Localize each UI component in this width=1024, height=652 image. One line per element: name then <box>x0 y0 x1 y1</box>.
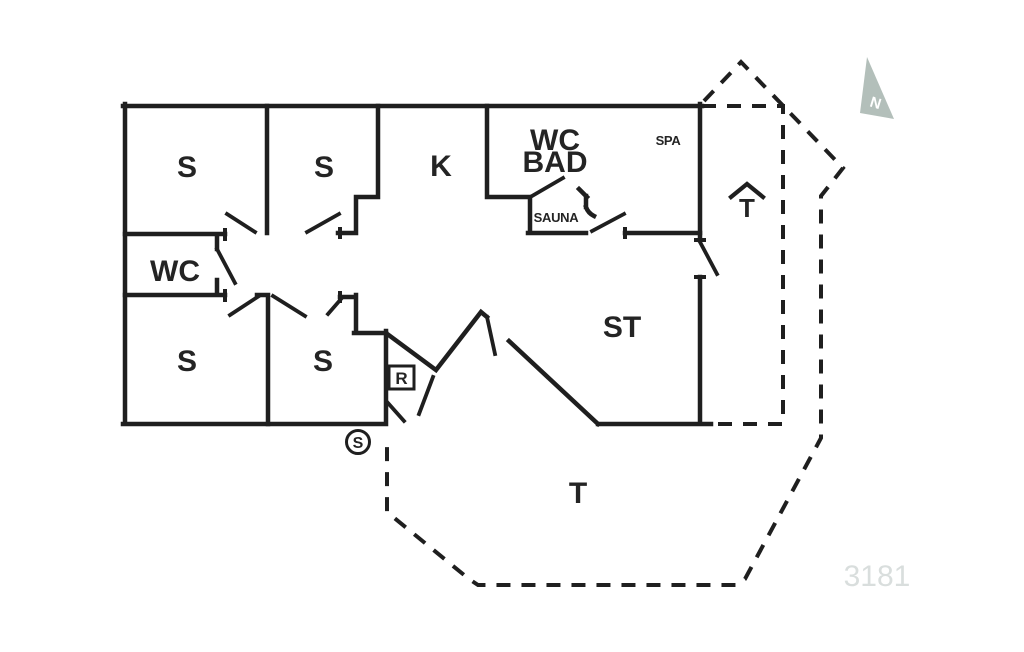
room-label-covered-terrace: T <box>739 193 755 223</box>
plan-number: 3181 <box>844 560 911 593</box>
floor-plan-page: R S T S S K WC BAD SPA SAUNA WC S S ST T… <box>0 0 1024 652</box>
room-label-wc: WC <box>150 255 200 288</box>
room-label-kitchen: K <box>430 150 452 183</box>
room-label-cupboard: S <box>353 435 364 452</box>
room-label-living-room: ST <box>603 311 641 344</box>
room-label-sauna: SAUNA <box>534 210 580 225</box>
room-label-bath-line2: BAD <box>523 146 588 179</box>
room-label-spa: SPA <box>656 133 682 148</box>
floor-plan-drawing: R S T S S K WC BAD SPA SAUNA WC S S ST T… <box>0 0 1024 652</box>
door-jamb-ticks <box>225 227 706 303</box>
north-arrow: N <box>860 57 894 119</box>
room-label-bedroom-nw: S <box>177 151 197 184</box>
room-label-bedroom-n: S <box>314 151 334 184</box>
room-label-bedroom-sw: S <box>177 345 197 378</box>
room-label-utility: R <box>395 369 407 388</box>
room-label-bedroom-s: S <box>313 345 333 378</box>
room-label-terrace: T <box>569 477 587 510</box>
door-leaves <box>217 178 717 421</box>
exterior-walls <box>123 104 711 424</box>
